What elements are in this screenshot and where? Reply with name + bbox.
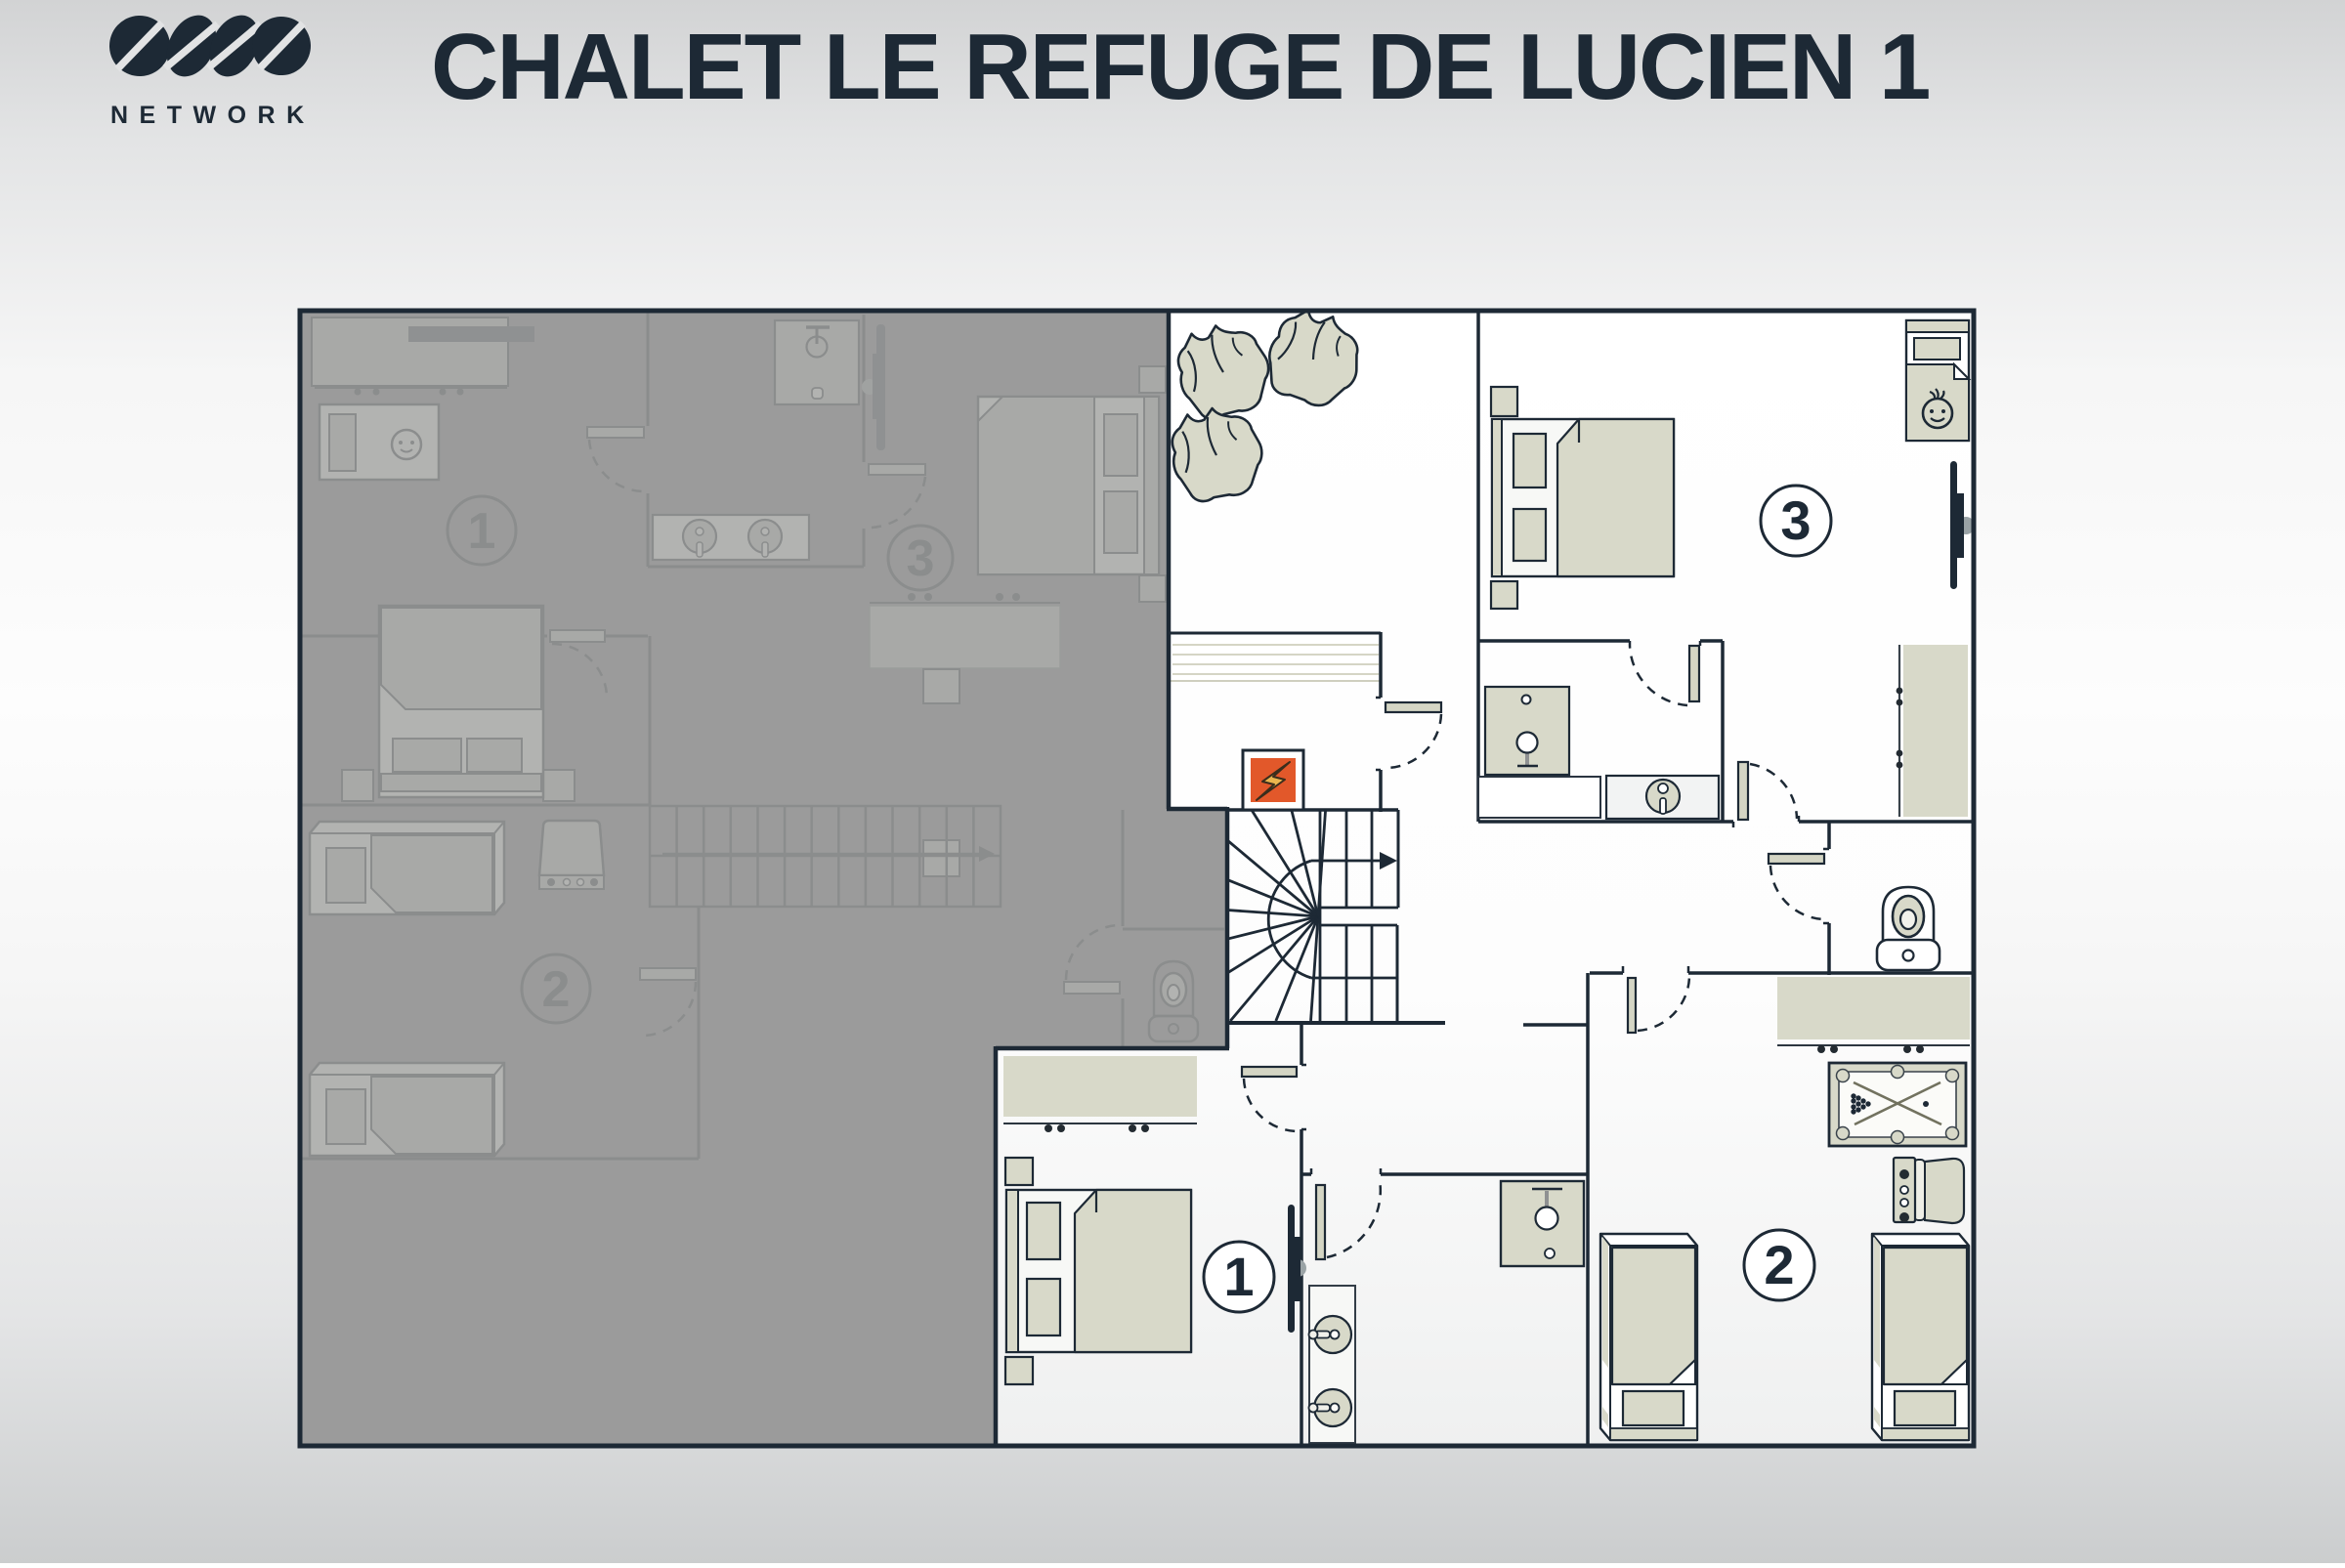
svg-text:2: 2	[542, 961, 571, 1018]
svg-text:CHALET LE REFUGE DE LUCIEN 1: CHALET LE REFUGE DE LUCIEN 1	[431, 15, 1929, 119]
svg-text:3: 3	[1780, 489, 1811, 551]
svg-text:1: 1	[1223, 1246, 1254, 1307]
svg-text:2: 2	[1764, 1234, 1794, 1295]
svg-text:1: 1	[468, 503, 496, 560]
svg-text:NETWORK: NETWORK	[110, 102, 316, 129]
svg-text:3: 3	[907, 530, 935, 587]
